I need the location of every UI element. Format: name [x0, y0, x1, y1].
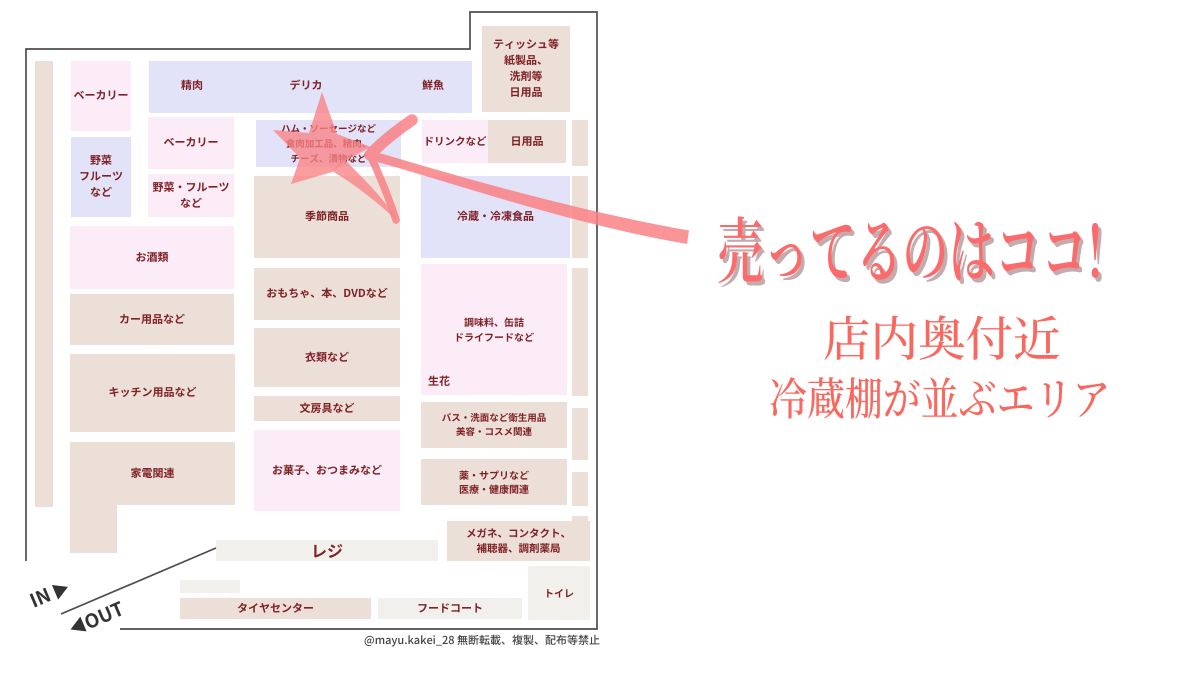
- svg-text:IN: IN: [25, 581, 54, 614]
